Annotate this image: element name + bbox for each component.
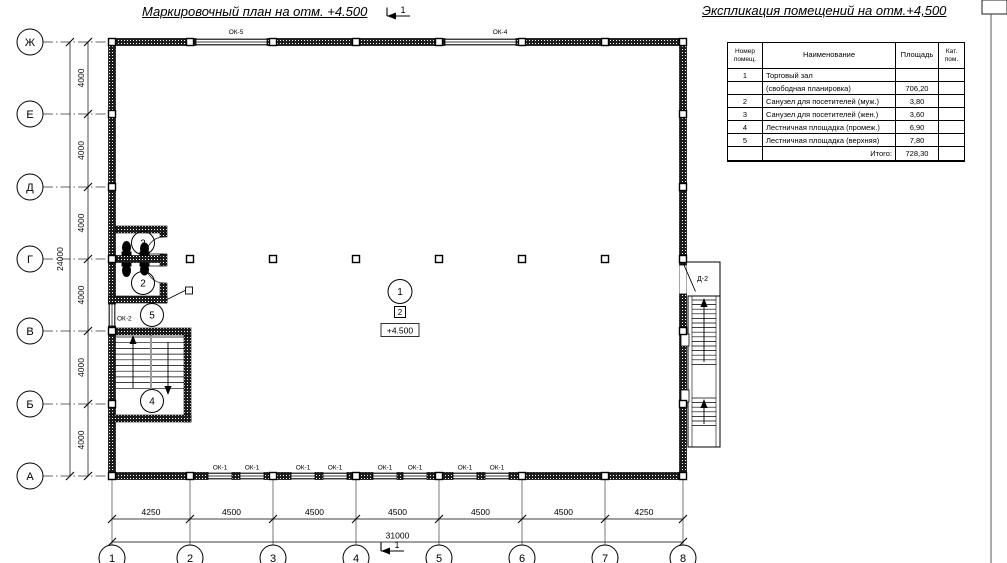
column-square: [602, 473, 609, 480]
section-arrow-icon: [381, 548, 390, 555]
column-square: [270, 39, 277, 46]
stair-tab: [681, 334, 689, 346]
table-cell-name: Итого:: [763, 147, 896, 160]
axis-label-col: 7: [602, 553, 608, 563]
axis-label-col: 8: [680, 553, 686, 563]
column-square: [109, 184, 116, 191]
window-ok2: [109, 304, 116, 326]
axis-label-row: В: [26, 326, 33, 338]
axis-label-col: 4: [353, 553, 359, 563]
room-number-wc-women: 3: [140, 239, 146, 250]
table-cell-cat: [939, 69, 964, 82]
table-cell-name: Лестничная площадка (промеж.): [763, 121, 896, 134]
landing-door-leaf: [167, 290, 186, 300]
column-square: [519, 256, 526, 263]
window-label-ok1: ОК-1: [408, 465, 423, 472]
table-header-num: Номер помещ.: [728, 43, 763, 69]
dim-text-bottom: 4500: [471, 507, 490, 517]
table-cell-num: 1: [728, 69, 763, 82]
column-square: [680, 473, 687, 480]
door-label-d2: Д-2: [697, 276, 708, 283]
window-labels: ОК-5 ОК-4 ОК-2 Д-2: [117, 29, 708, 323]
table-header-name: Наименование: [763, 43, 896, 69]
window-label-ok5: ОК-5: [229, 29, 244, 36]
table-cell-num: 4: [728, 121, 763, 134]
plan-title: Маркировочный план на отм. +4.500: [142, 4, 367, 19]
column-square: [187, 256, 194, 263]
axis-label-row: А: [26, 471, 34, 483]
dim-text-left: 4000: [76, 141, 86, 160]
table-cell-area: 6,90: [896, 121, 939, 134]
table-cell-area: [896, 69, 939, 82]
column-square: [436, 39, 443, 46]
door-jamb: [186, 287, 193, 294]
table-cell-area: 706,20: [896, 82, 939, 95]
dim-text-bottom: 4500: [388, 507, 407, 517]
table-cell-cat: [939, 147, 964, 160]
column-square: [436, 256, 443, 263]
table-cell-num: 5: [728, 134, 763, 147]
dim-text-bottom: 4500: [222, 507, 241, 517]
section-arrow-icon: [387, 13, 396, 20]
column-square: [109, 256, 116, 263]
column-square: [187, 39, 194, 46]
toilet-wall-middle: [116, 256, 161, 263]
table-cell-name: (свободная планировка): [763, 82, 896, 95]
dim-text-left: 4000: [76, 285, 86, 304]
axis-label-col: 5: [436, 553, 442, 563]
wall-bottom: [109, 473, 687, 480]
column-square: [680, 111, 687, 118]
elevation-mark: +4.500: [387, 326, 414, 336]
column-square: [353, 473, 360, 480]
dim-text-bottom: 4250: [635, 507, 654, 517]
dim-text-bottom: 4500: [554, 507, 573, 517]
window-label-ok4: ОК-4: [493, 29, 508, 36]
column-square: [680, 328, 687, 335]
table-cell-name: Торговый зал: [763, 69, 896, 82]
dim-text-bottom: 4500: [305, 507, 324, 517]
dim-text-left: 4000: [76, 68, 86, 87]
column-square: [109, 39, 116, 46]
table-header-area: Площадь: [896, 43, 939, 69]
zone-and-elevation: 2 +4.500: [381, 307, 419, 337]
dim-total-left: 24000: [55, 247, 65, 271]
toilet-wall-right: [160, 233, 167, 237]
column-square: [602, 256, 609, 263]
window-label-ok1: ОК-1: [296, 465, 311, 472]
column-square: [680, 401, 687, 408]
room-number-wc-men: 2: [140, 279, 146, 290]
table-cell-name: Лестничная площадка (верхняя): [763, 134, 896, 147]
column-square: [109, 401, 116, 408]
column-square: [680, 184, 687, 191]
column-square: [353, 39, 360, 46]
dimension-lines: [66, 38, 687, 546]
table-cell-cat: [939, 134, 964, 147]
section-mark-top: 1: [387, 5, 410, 20]
column-square: [270, 473, 277, 480]
column-square: [680, 39, 687, 46]
room-number-landing-mid: 4: [149, 397, 155, 408]
outer-walls: [109, 39, 687, 480]
wall-top: [109, 39, 687, 46]
column-square: [109, 473, 116, 480]
table-cell-cat: [939, 108, 964, 121]
column-square: [353, 256, 360, 263]
table-cell-num: [728, 82, 763, 95]
column-square: [109, 328, 116, 335]
dim-text-bottom: 4250: [142, 507, 161, 517]
table-cell-area: 7,80: [896, 134, 939, 147]
column-square: [602, 39, 609, 46]
column-square: [187, 473, 194, 480]
table-cell-area: 3,60: [896, 108, 939, 121]
table-cell-cat: [939, 121, 964, 134]
dim-text-left: 4000: [76, 358, 86, 377]
table-header-cat: Кат. пом.: [939, 43, 964, 69]
toilet-wall-right: [160, 254, 167, 266]
column-square: [519, 473, 526, 480]
table-cell-area: 728,30: [896, 147, 939, 160]
window-label-ok1: ОК-1: [213, 465, 228, 472]
window-label-ok1: ОК-1: [245, 465, 260, 472]
stair-wall-bottom: [109, 415, 192, 422]
sheet-frame-corner: [982, 0, 1007, 563]
window-label-ok1: ОК-1: [458, 465, 473, 472]
room-number-landing-top: 5: [149, 311, 155, 322]
stair-direction-arrows: [130, 335, 172, 395]
stair-wall-right: [184, 335, 191, 422]
column-square: [436, 473, 443, 480]
axis-label-col: 6: [519, 553, 525, 563]
explication-title: Экспликация помещений на отм.+4,500: [702, 3, 946, 18]
axis-label-row: Ж: [25, 37, 35, 49]
axis-label-col: 2: [187, 553, 193, 563]
toilet-wall-bottom: [109, 296, 168, 303]
axis-label-col: 3: [270, 553, 276, 563]
window-label-ok2: ОК-2: [117, 316, 132, 323]
stair-treads: [116, 337, 185, 388]
column-square: [519, 39, 526, 46]
stair-wall-top: [109, 328, 192, 335]
table-cell-cat: [939, 95, 964, 108]
axis-label-row: Г: [27, 254, 33, 266]
explication-table: Номер помещ. Наименование Площадь Кат. п…: [727, 42, 965, 162]
section-number: 1: [394, 540, 399, 550]
section-number: 1: [400, 5, 405, 15]
window-labels-ok1: ОК-1ОК-1ОК-1ОК-1ОК-1ОК-1ОК-1ОК-1: [213, 465, 505, 472]
room-number-hall: 1: [397, 287, 403, 298]
column-square: [270, 256, 277, 263]
table-cell-num: [728, 147, 763, 160]
dim-text-left: 4000: [76, 430, 86, 449]
table-cell-cat: [939, 82, 964, 95]
table-cell-num: 2: [728, 95, 763, 108]
table-cell-area: 3,80: [896, 95, 939, 108]
axis-label-col: 1: [109, 553, 115, 563]
table-cell-name: Санузел для посетителей (жен.): [763, 108, 896, 121]
axis-label-row: Д: [26, 182, 34, 194]
drawing-sheet: ОК-5 ОК-4 ОК-2 Д-2 ОК-1ОК-1ОК-1ОК-1ОК-1О…: [0, 0, 1007, 563]
window-label-ok1: ОК-1: [490, 465, 505, 472]
dim-text-left: 4000: [76, 213, 86, 232]
window-label-ok1: ОК-1: [328, 465, 343, 472]
axis-label-row: Б: [26, 399, 33, 411]
table-cell-name: Санузел для посетителей (муж.): [763, 95, 896, 108]
dim-total-bottom: 31000: [386, 531, 410, 541]
column-square: [109, 111, 116, 118]
zone-mark: 2: [398, 308, 403, 317]
axis-label-row: Е: [26, 109, 33, 121]
structural-columns: [109, 39, 687, 480]
table-cell-num: 3: [728, 108, 763, 121]
column-square: [680, 256, 687, 263]
window-label-ok1: ОК-1: [378, 465, 393, 472]
